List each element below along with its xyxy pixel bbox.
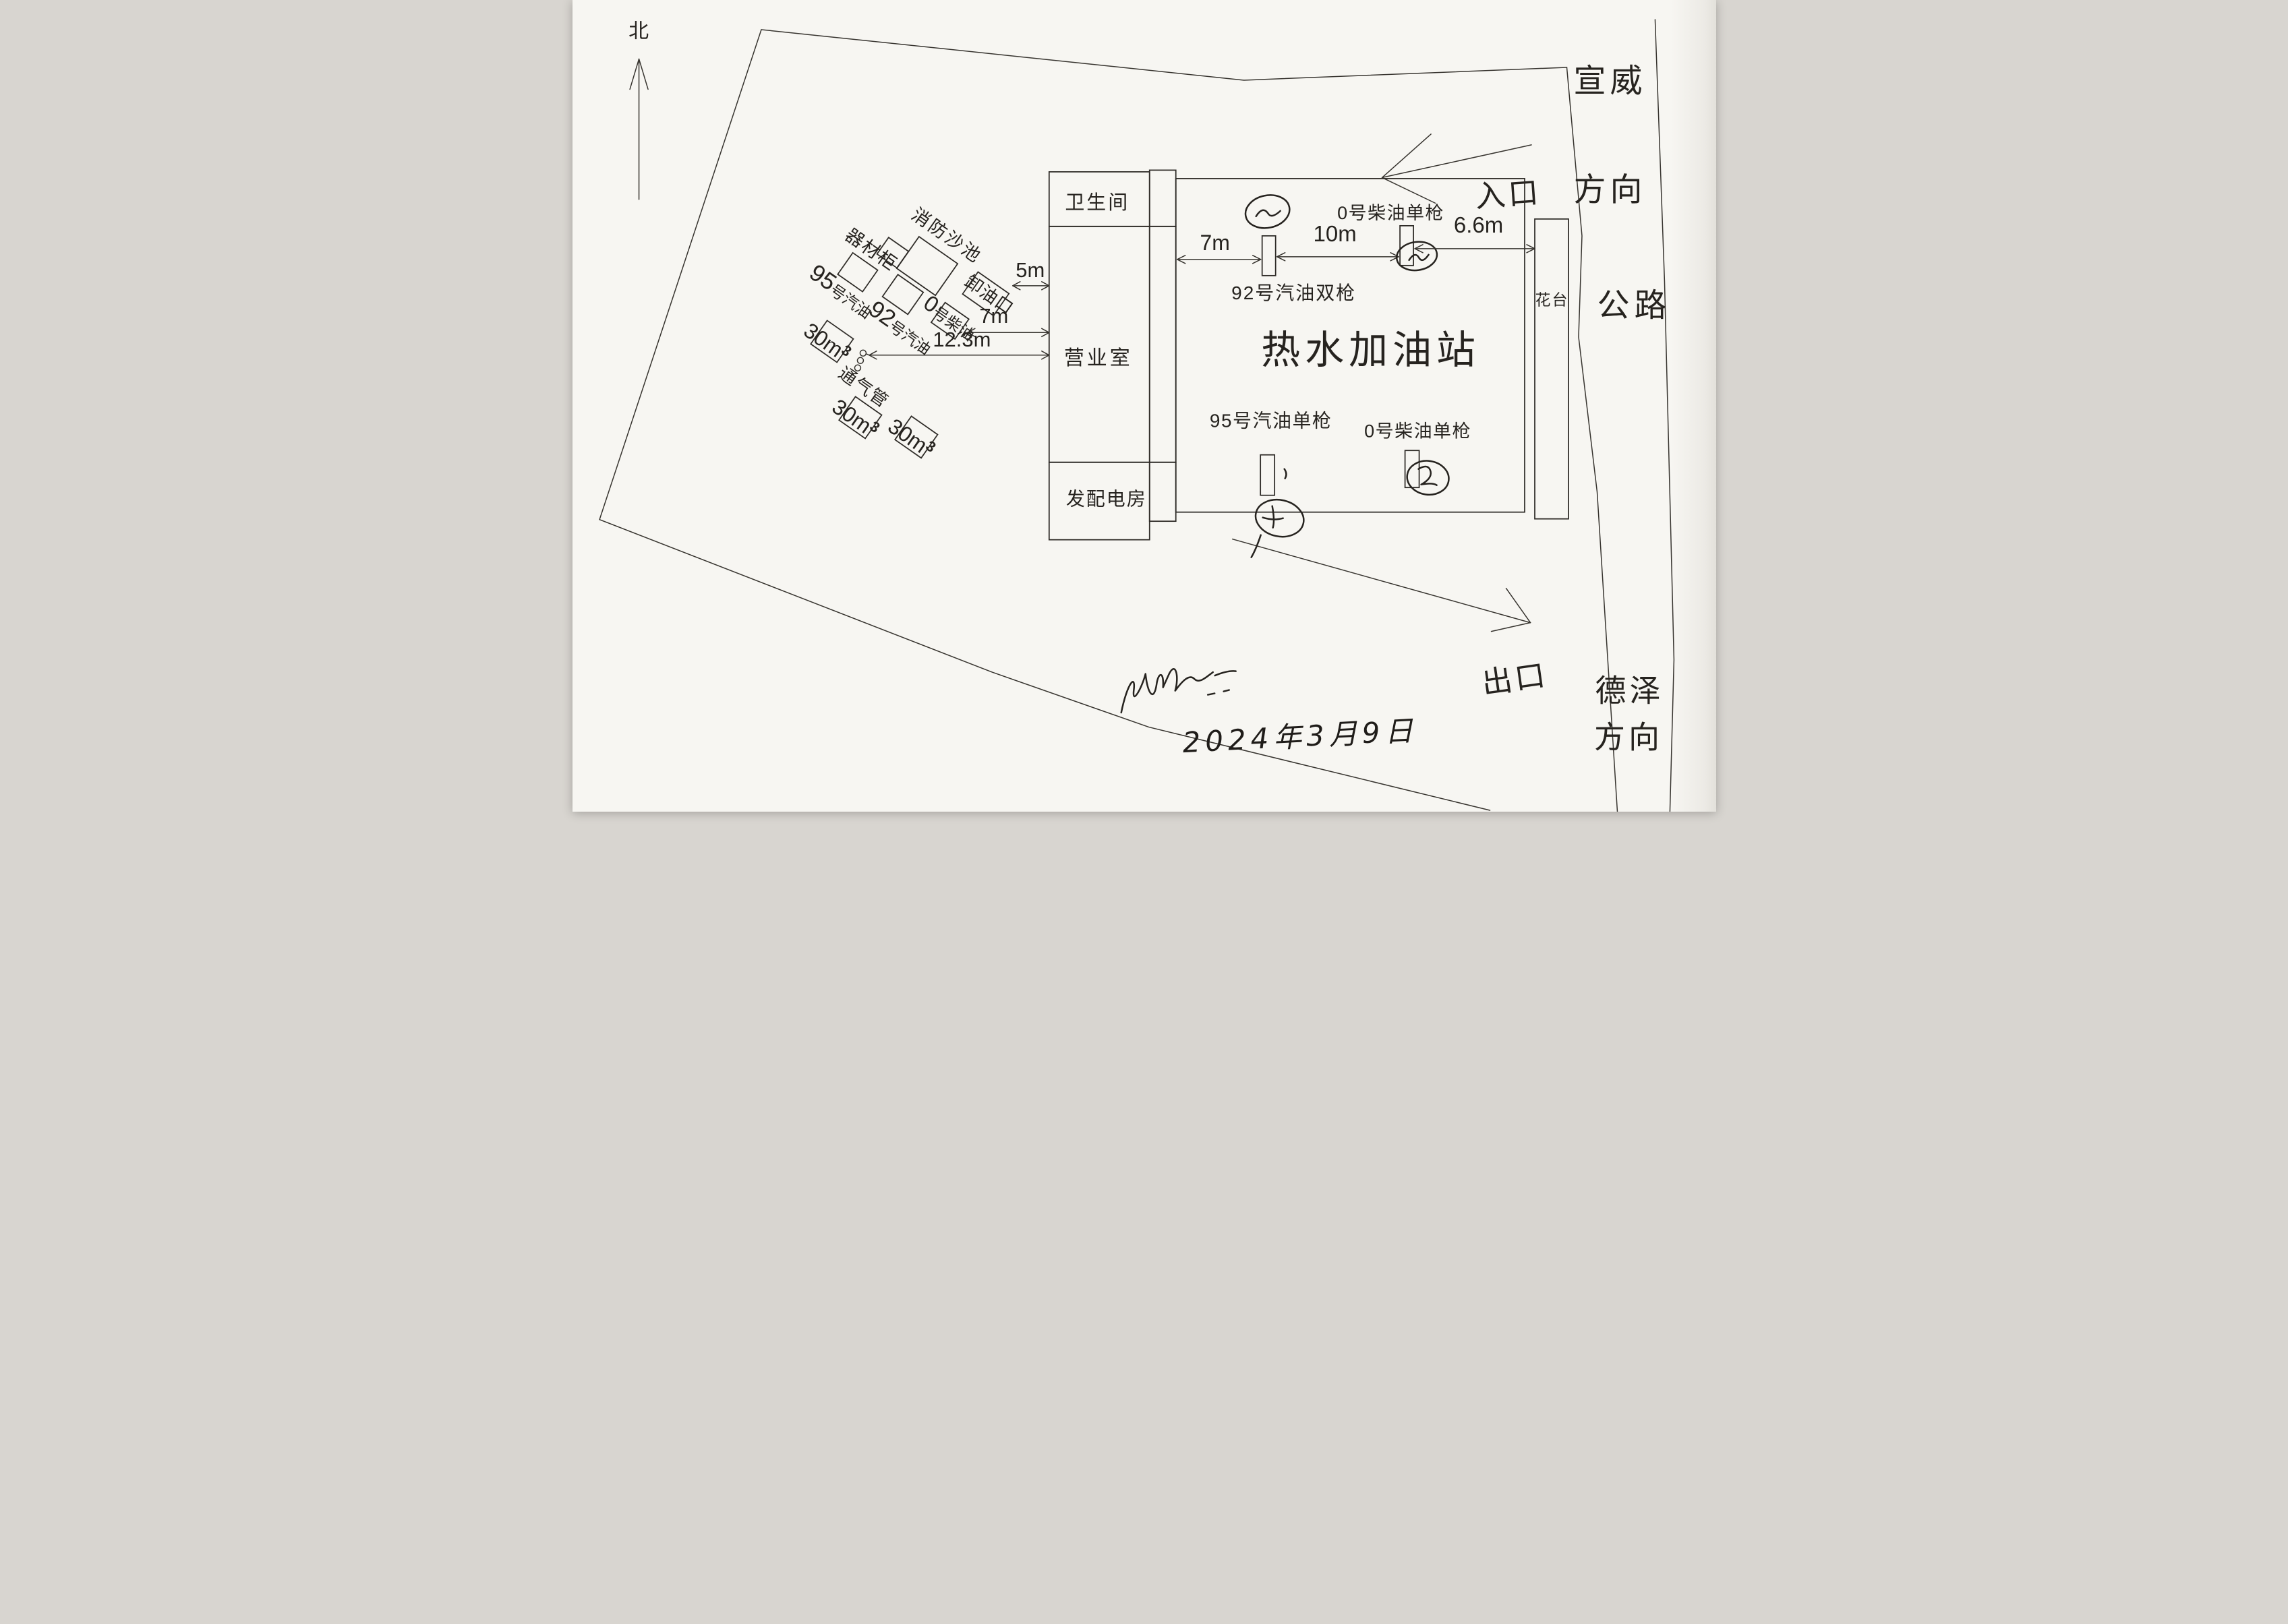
tick-mark xyxy=(1284,469,1286,479)
dimension-12-3m xyxy=(869,351,1049,359)
island-92-label: 92号汽油双枪 xyxy=(1231,282,1356,303)
exit-arrow xyxy=(1232,539,1530,632)
road-label: 公路 xyxy=(1597,288,1671,324)
dimension-10m xyxy=(1277,253,1398,261)
exit-label: 出口 xyxy=(1479,657,1550,700)
canopy-column-strip xyxy=(1149,170,1175,521)
xuanwei-direction-line1: 宣威 xyxy=(1573,63,1646,99)
storage-tank-1-label: 30m3 xyxy=(799,318,854,367)
check-scribble-1 xyxy=(1242,191,1293,233)
tank-92-suffix: 号汽油 xyxy=(885,318,933,359)
equipment-cabinet-label: 器材柜 xyxy=(841,224,900,274)
check-scribble-2 xyxy=(1395,239,1438,273)
signature-scribble xyxy=(1121,669,1235,713)
island-95-label: 95号汽油单枪 xyxy=(1209,411,1331,431)
north-arrow xyxy=(630,59,648,199)
deze-direction-line2: 方向 xyxy=(1593,720,1662,755)
check-scribble-4 xyxy=(1405,458,1450,498)
station-name: 热水加油站 xyxy=(1261,329,1480,372)
vent-pipe xyxy=(854,350,869,371)
flower-bed-label: 花台 xyxy=(1535,291,1568,308)
storage-tank-3-label: 30m3 xyxy=(883,413,939,462)
date-label: 2024年3月9日 xyxy=(1181,714,1418,759)
north-label: 北 xyxy=(628,20,649,42)
dispenser-0-diesel-top xyxy=(1400,226,1413,266)
island-0-diesel-bottom-label: 0号柴油单枪 xyxy=(1364,421,1471,442)
check-scribble-3 xyxy=(1251,495,1307,558)
dim-5m-label: 5m xyxy=(1016,258,1045,282)
deze-direction-line1: 德泽 xyxy=(1595,673,1664,709)
fire-sand-pool-label: 消防沙池 xyxy=(908,204,985,267)
scanned-site-plan: 北 公路 宣威 方向 德泽 方向 入口 出口 卫生间 营业室 发配电房 热水加油… xyxy=(573,0,1716,812)
island-0-diesel-top-label: 0号柴油单枪 xyxy=(1337,203,1444,223)
office-label: 营业室 xyxy=(1063,347,1132,369)
entrance-label: 入口 xyxy=(1473,175,1542,214)
dim-10m-label: 10m xyxy=(1313,221,1356,246)
flower-bed xyxy=(1535,219,1568,519)
dispenser-92-double xyxy=(1262,236,1275,276)
toilet-label: 卫生间 xyxy=(1065,192,1130,214)
dimension-7m-top xyxy=(1177,255,1260,264)
dim-6-6m-label: 6.6m xyxy=(1453,212,1502,237)
dimension-5m xyxy=(1012,282,1049,290)
site-boundary xyxy=(599,30,1566,810)
dim-7m-top-label: 7m xyxy=(1200,231,1229,255)
power-room-label: 发配电房 xyxy=(1065,489,1146,510)
xuanwei-direction-line2: 方向 xyxy=(1573,172,1646,208)
dispenser-95-single xyxy=(1260,455,1274,495)
